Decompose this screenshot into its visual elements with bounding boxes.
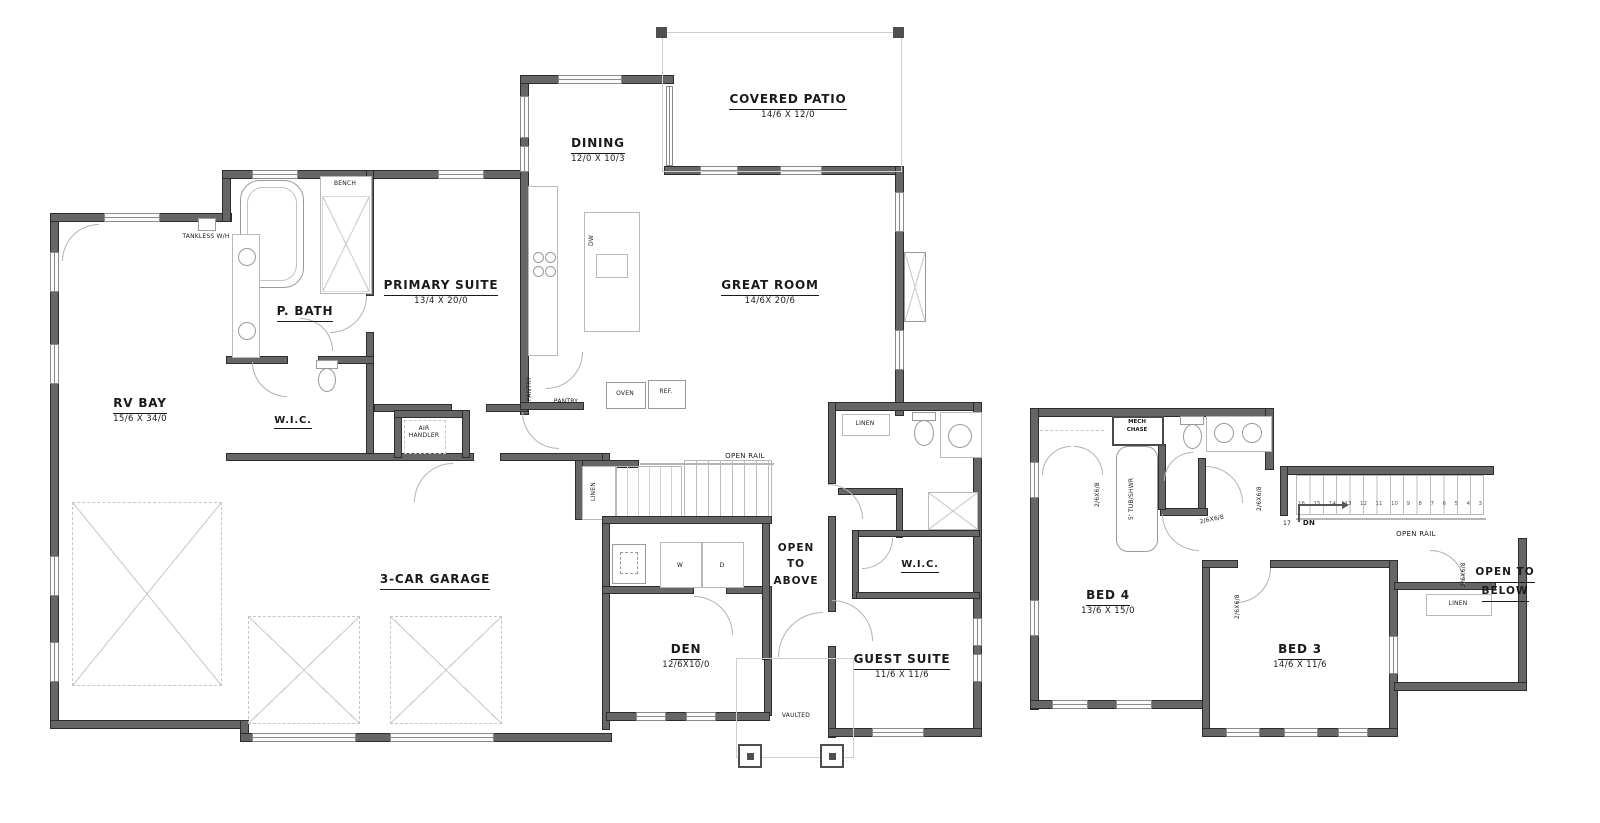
mech-chase-line1: MECH (1128, 419, 1146, 425)
sink (238, 248, 256, 266)
open-to-below-line1: OPEN TO (1475, 564, 1534, 583)
pantry-label-vertical: PANTRY (526, 366, 538, 412)
door-arc (522, 412, 559, 449)
window (104, 213, 160, 222)
window (520, 96, 529, 138)
wall (602, 516, 772, 524)
open-to-above-line1: OPEN (778, 542, 815, 554)
window (1284, 728, 1318, 737)
patio-post (893, 27, 904, 38)
door-arc (546, 352, 583, 389)
room-label-den: DEN 12/6X10/0 (648, 638, 724, 671)
porch-outline (736, 658, 854, 758)
tread-number: 10 (1391, 501, 1398, 507)
shower (928, 492, 978, 530)
wall (366, 332, 374, 458)
sink (1214, 423, 1234, 443)
tread-number: 7 (1431, 501, 1435, 507)
tread-number: 9 (1407, 501, 1411, 507)
room-label-primary-suite: PRIMARY SUITE 13/4 X 20/0 (378, 274, 504, 307)
room-dims: 14/6X 20/6 (700, 296, 840, 307)
wall (226, 453, 474, 461)
wall (1198, 458, 1206, 514)
wall (856, 530, 980, 537)
room-name: PRIMARY SUITE (384, 278, 499, 296)
dryer-label: D (714, 562, 730, 570)
open-to-above-line3: ABOVE (773, 575, 818, 587)
wall (828, 402, 982, 411)
island-sink (596, 254, 628, 278)
patio-post (656, 27, 667, 38)
sink (1242, 423, 1262, 443)
sink (238, 322, 256, 340)
window (686, 712, 716, 721)
door-arc (694, 596, 733, 635)
room-dims: 12/0 X 10/3 (548, 154, 648, 165)
door-arc (1206, 466, 1243, 503)
tub-shower-label: 5' TUB/SHWR (1128, 456, 1144, 542)
dishwasher-label: DW (588, 228, 599, 254)
room-label-p-bath: P. BATH (268, 300, 342, 322)
window (1052, 700, 1088, 709)
window (636, 712, 666, 721)
tread-number: 3 (1479, 501, 1483, 507)
room-label-guest-suite: GUEST SUITE 11/6 X 11/6 (840, 648, 964, 681)
tread-number: 4 (1467, 501, 1471, 507)
window (1226, 728, 1260, 737)
garage-door (252, 733, 356, 742)
stairs-lower-run (616, 466, 682, 518)
fireplace (904, 252, 926, 322)
wall (1394, 682, 1527, 691)
mech-chase-line2: CHASE (1127, 427, 1148, 433)
open-to-above-line2: TO (787, 558, 805, 570)
room-name: COVERED PATIO (729, 92, 846, 110)
tankless-label: TANKLESS W/H (170, 233, 242, 241)
door-arc (1042, 446, 1071, 475)
tread-number: 12 (1360, 501, 1367, 507)
window (438, 170, 484, 179)
window (558, 75, 622, 84)
tankless-water-heater (198, 218, 216, 231)
toilet-bowl (318, 368, 336, 392)
rv-bay-xbrace (72, 502, 222, 686)
room-name: 3-CAR GARAGE (380, 572, 490, 590)
room-dims: 14/6 X 12/0 (700, 110, 876, 121)
door-size-label: 2/6X6/8 (1256, 470, 1267, 528)
door-size-label: 2/6X6/8 (1460, 546, 1471, 604)
mech-chase-label: MECH CHASE (1114, 419, 1160, 434)
room-label-wic: W.I.C. (258, 408, 328, 429)
room-label-guest-wic: W.I.C. (888, 552, 952, 573)
vaulted-label: VAULTED (766, 712, 826, 720)
stairs-upper-floor (1296, 475, 1484, 515)
closet-rod (1040, 430, 1104, 431)
stair-direction-line (1298, 504, 1344, 506)
pantry-label: PANTRY (544, 398, 588, 406)
door-arc (414, 463, 453, 502)
air-handler-line1: AIR (419, 425, 430, 432)
window (895, 330, 904, 370)
room-name: DEN (671, 642, 702, 660)
window (872, 728, 924, 737)
wall (1030, 408, 1039, 710)
tread-number: 8 (1419, 501, 1423, 507)
room-name: BED 4 (1086, 588, 1130, 606)
stair-rail (1296, 518, 1486, 520)
room-name: W.I.C. (901, 558, 938, 573)
room-name: GREAT ROOM (721, 278, 819, 296)
window (1030, 600, 1039, 636)
open-rail-label: OPEN RAIL (1368, 530, 1464, 539)
room-name: BED 3 (1278, 642, 1322, 660)
stair-direction-line (1298, 504, 1300, 522)
room-name: GUEST SUITE (854, 652, 951, 670)
wall (50, 720, 246, 729)
tread-number: 6 (1443, 501, 1447, 507)
door-arc (300, 318, 333, 351)
room-dims: 13/6 X 15/0 (1060, 606, 1156, 617)
stair-direction-arrow (1342, 501, 1349, 509)
window (1030, 462, 1039, 498)
door-size-label: 2/6X6/8 (1094, 466, 1105, 524)
window (973, 654, 982, 682)
door-arc (1164, 452, 1193, 481)
toilet-bowl (914, 420, 934, 446)
landing-number: 17 (1280, 520, 1294, 528)
wall (1202, 560, 1210, 737)
window (50, 556, 59, 596)
wall (394, 410, 470, 418)
wall (462, 410, 470, 458)
stairs-upper-run (684, 460, 772, 518)
stair-rail (640, 463, 774, 465)
washer-label: W (672, 562, 688, 570)
door-arc (62, 224, 99, 261)
open-rail-label: OPEN RAIL (700, 452, 790, 461)
room-dims: 13/4 X 20/0 (378, 296, 504, 307)
ref-label: REF. (649, 388, 683, 396)
room-label-garage: 3-CAR GARAGE (360, 568, 510, 590)
window (1389, 636, 1398, 674)
porch-column (820, 744, 844, 768)
floor-plan-canvas: LINEN OPEN RAIL W D DW PANTRY PANTRY OVE… (0, 0, 1600, 823)
window (973, 618, 982, 646)
wall (852, 530, 859, 599)
room-dims: 14/6 X 11/6 (1252, 660, 1348, 671)
garage-door (390, 733, 494, 742)
window (1116, 700, 1152, 709)
window (1338, 728, 1368, 737)
room-dims: 11/6 X 11/6 (840, 670, 964, 681)
air-handler-line2: HANDLER (409, 432, 439, 439)
linen-label: LINEN (842, 420, 888, 428)
wall (1280, 466, 1288, 516)
porch-column (738, 744, 762, 768)
room-label-great-room: GREAT ROOM 14/6X 20/6 (700, 274, 840, 307)
window (252, 170, 298, 179)
wall (1280, 466, 1494, 475)
room-label-bed4: BED 4 13/6 X 15/0 (1060, 584, 1156, 617)
room-label-dining: DINING 12/0 X 10/3 (548, 132, 648, 165)
wall (1270, 560, 1397, 568)
room-label-rv-bay: RV BAY 15/6 X 34/0 (92, 392, 188, 425)
room-name: DINING (571, 136, 625, 154)
sink (948, 424, 972, 448)
door-arc (832, 600, 873, 641)
door-arc (252, 362, 287, 397)
range-burner (545, 266, 556, 277)
open-to-below-line2: BELOW (1482, 583, 1529, 602)
window (895, 192, 904, 232)
window (50, 344, 59, 384)
tread-number: 11 (1376, 501, 1383, 507)
wall (1202, 560, 1238, 568)
utility-sink-basin (620, 552, 638, 574)
room-label-bed3: BED 3 14/6 X 11/6 (1252, 638, 1348, 671)
garage-bay-xbrace (248, 616, 360, 724)
room-dims: 15/6 X 34/0 (92, 414, 188, 425)
shower-floor (322, 196, 370, 292)
door-size-label: 2/6X6/8 (1234, 578, 1245, 636)
room-name: W.I.C. (274, 414, 311, 429)
open-to-above-label: OPEN TO ABOVE (760, 540, 832, 589)
garage-bay-xbrace (390, 616, 502, 724)
range-burner (545, 252, 556, 263)
window (50, 642, 59, 682)
bench-label: BENCH (324, 180, 366, 188)
wall (856, 592, 980, 599)
tread-number: 5 (1455, 501, 1459, 507)
room-name: RV BAY (113, 396, 166, 414)
window (520, 146, 529, 172)
room-label-covered-patio: COVERED PATIO 14/6 X 12/0 (700, 88, 876, 121)
down-label: DN (1298, 519, 1320, 528)
door-arc (778, 612, 823, 657)
window (50, 252, 59, 292)
room-dims: 12/6X10/0 (648, 660, 724, 671)
wall (828, 402, 836, 484)
range-burner (533, 266, 544, 277)
air-handler-label: AIR HANDLER (400, 425, 448, 439)
wall (1518, 538, 1527, 690)
range-burner (533, 252, 544, 263)
room-name: P. BATH (277, 304, 334, 322)
oven-label: OVEN (608, 390, 642, 398)
toilet-bowl (1183, 424, 1202, 449)
linen-label: LINEN (590, 470, 604, 514)
